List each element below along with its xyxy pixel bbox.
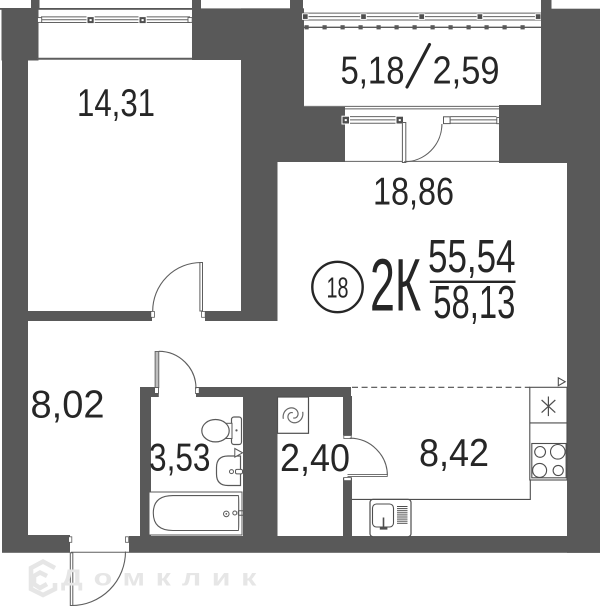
svg-text:14,31: 14,31 [77, 82, 155, 125]
svg-text:55,54: 55,54 [428, 230, 516, 282]
svg-text:2,40: 2,40 [280, 437, 350, 480]
svg-text:58,13: 58,13 [433, 276, 515, 328]
svg-text:Домклик: Домклик [61, 565, 267, 591]
svg-text:8,42: 8,42 [419, 432, 489, 475]
svg-text:18: 18 [327, 272, 349, 304]
svg-text:5,18: 5,18 [341, 50, 405, 93]
svg-text:2,59: 2,59 [433, 50, 500, 93]
svg-text:3,53: 3,53 [149, 437, 211, 480]
svg-text:2К: 2К [370, 244, 421, 327]
svg-text:8,02: 8,02 [31, 384, 105, 427]
svg-text:18,86: 18,86 [373, 170, 454, 213]
